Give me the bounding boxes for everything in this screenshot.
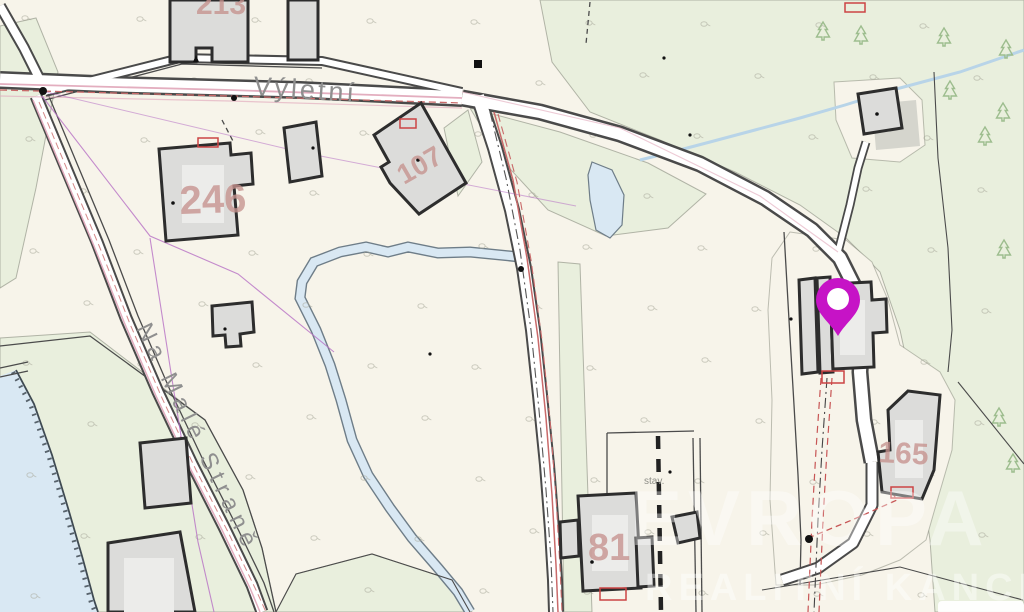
watermark-line1: EVROPA [630, 474, 990, 562]
parcel-number-165: 165 [878, 436, 930, 472]
building-pin-narrow1 [799, 278, 818, 374]
parcel-number-246: 246 [179, 177, 247, 223]
attribution-pill[interactable] [938, 601, 1024, 612]
building-small-rect [140, 438, 191, 508]
building-right-of-246 [284, 122, 322, 182]
map-viewport[interactable]: Výletní Na Malé Straně 213 246 107 81 16… [0, 0, 1024, 612]
parcel-number-81: 81 [588, 527, 630, 569]
parcel-number-213: 213 [196, 0, 246, 21]
watermark: EVROPA REALITNÍ KANCELÁŘ [630, 474, 1024, 609]
building-square-topright [858, 88, 902, 134]
building-213b [288, 0, 318, 60]
cadastral-map[interactable]: Výletní Na Malé Straně 213 246 107 81 16… [0, 0, 1024, 612]
